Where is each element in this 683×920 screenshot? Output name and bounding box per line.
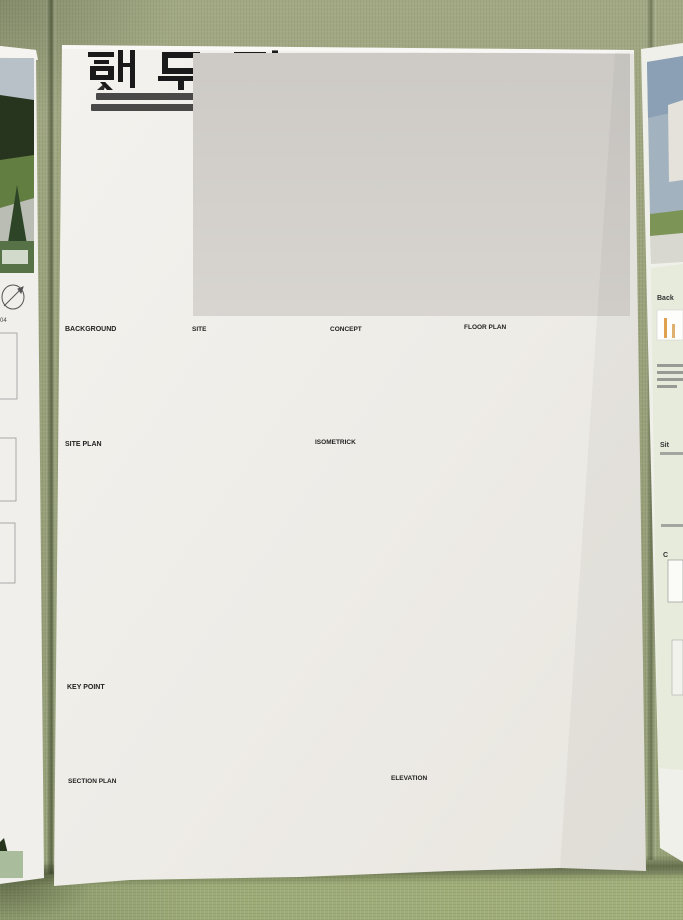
svg-text:SITE PLAN: SITE PLAN xyxy=(65,441,102,448)
svg-text:C: C xyxy=(663,552,668,559)
svg-text:Back: Back xyxy=(657,295,674,302)
svg-text:SECTION PLAN: SECTION PLAN xyxy=(68,778,117,785)
svg-text:ELEVATION: ELEVATION xyxy=(391,775,428,782)
svg-text:BACKGROUND: BACKGROUND xyxy=(65,326,116,333)
svg-text:ISOMETRICK: ISOMETRICK xyxy=(315,439,356,446)
svg-text:FLOOR PLAN: FLOOR PLAN xyxy=(464,324,507,331)
svg-text:SITE: SITE xyxy=(192,326,207,333)
svg-text:04: 04 xyxy=(0,318,7,324)
svg-text:KEY POINT: KEY POINT xyxy=(67,684,105,691)
svg-text:Sit: Sit xyxy=(660,442,670,449)
svg-text:CONCEPT: CONCEPT xyxy=(330,326,362,333)
